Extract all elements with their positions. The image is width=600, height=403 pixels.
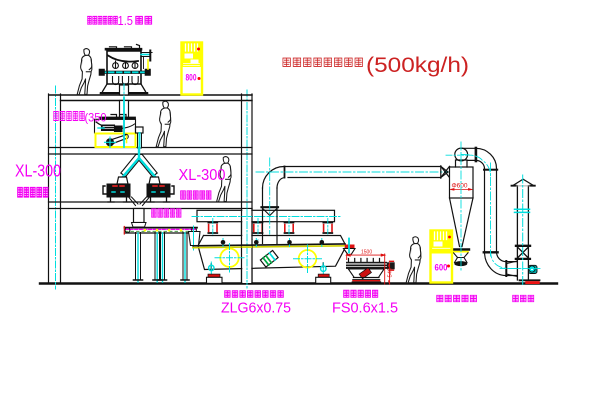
svg-text:800: 800 [186,73,197,83]
svg-text:ZLG6x0.75: ZLG6x0.75 [221,301,291,317]
svg-text:1.5: 1.5 [118,13,134,28]
svg-text:(350: (350 [85,111,107,125]
svg-text:1500: 1500 [361,250,372,256]
svg-text:540: 540 [388,268,394,278]
svg-text:XL-300: XL-300 [179,167,226,184]
svg-text:600: 600 [435,263,448,273]
svg-text:XL-300: XL-300 [15,161,61,181]
svg-text:(500kg/h): (500kg/h) [366,54,469,77]
svg-text:Φ600: Φ600 [452,183,468,190]
svg-text:FS0.6x1.5: FS0.6x1.5 [332,301,398,317]
